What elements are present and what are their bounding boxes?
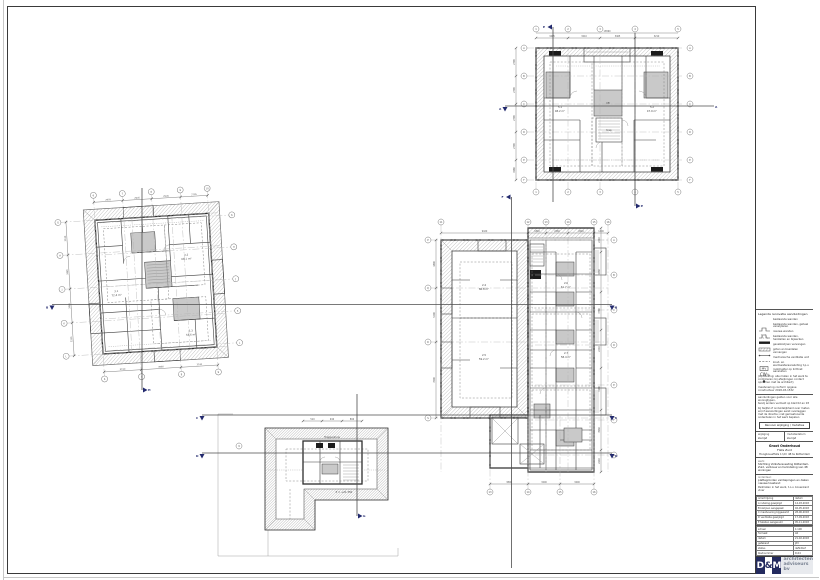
section-arrow xyxy=(636,204,641,209)
section-label: B xyxy=(46,306,49,310)
legend-item: bestaande wanden, geheel verwijderen xyxy=(758,324,811,329)
stamp-two-columns: wijziging zie lijst mutatiedatum zie lij… xyxy=(756,431,813,441)
revision-text: E teksten aangevuld xyxy=(757,520,794,525)
legend-title: Legenda renovatie aanduidingen xyxy=(758,312,811,316)
stamp-note-block: bij twijfel of onduidelijkheid over mate… xyxy=(758,408,811,420)
meta-table: schaal1:100formaatA0datum21-02-2018getek… xyxy=(756,526,813,556)
revision-date: 05-11-2018 xyxy=(793,520,812,525)
wall-new-icon xyxy=(758,330,771,335)
section-label: H xyxy=(148,388,151,392)
section-arrow xyxy=(610,416,615,421)
section-arrow xyxy=(610,306,615,311)
legend-item: bestaande wanden, herstellen en bijwerke… xyxy=(758,336,811,341)
legend-item-label: goten en boeidelen vervangen xyxy=(773,349,811,354)
section-label: A xyxy=(715,105,718,109)
section-label: A xyxy=(499,107,502,111)
meta-row: bladnummerD-04 xyxy=(757,551,813,556)
section-label: D xyxy=(196,454,199,458)
meta-value: D-04 xyxy=(793,551,812,556)
dot-icon xyxy=(758,369,771,374)
section-label: B xyxy=(615,306,618,310)
legend-item-label: rookmelder op lichtnet aansluiten xyxy=(773,369,811,374)
section-label: E xyxy=(543,25,545,29)
section-label: F xyxy=(502,195,504,199)
section-label: C xyxy=(615,416,618,420)
section-lines-overlay: AABBCCDDEEFGH xyxy=(0,0,820,580)
client-section: werk: Stichting Volkshuisvesting Rotterd… xyxy=(756,457,813,473)
section-label: E xyxy=(641,204,643,208)
subject-line-2: nieuwe toestand xyxy=(758,482,811,485)
wall-existing-icon xyxy=(758,317,771,322)
wall-remove-icon xyxy=(758,324,771,329)
section-arrow xyxy=(548,25,553,30)
section-label: C xyxy=(196,416,199,420)
section-arrow xyxy=(610,454,615,459)
legend-item: goten en boeidelen vervangen xyxy=(758,349,811,354)
legend-item-label: koud- en warmwateraansluiting t.p.v. xyxy=(773,362,811,367)
logo-letter-d: D xyxy=(756,557,765,574)
section-label: G xyxy=(363,514,366,518)
peil-note: Peilmaten in het werk, t.o.v. bovenkant … xyxy=(758,487,811,493)
legend-item: bestaande wanden xyxy=(758,317,811,322)
section-arrow xyxy=(503,107,508,112)
section-arrow xyxy=(50,306,55,311)
legend-rows: bestaande wandenbestaande wanden, geheel… xyxy=(758,317,811,374)
section-label: D xyxy=(615,454,618,458)
logo-ampersand: & xyxy=(765,557,773,574)
section-arrow xyxy=(143,388,148,393)
cv-icon: CW∿ xyxy=(758,362,771,367)
meta-label: bladnummer xyxy=(757,551,794,556)
legend-item-label: bestaande wanden, herstellen en bijwerke… xyxy=(773,336,811,341)
legend-section: Legenda renovatie aanduidingen bestaande… xyxy=(756,309,813,394)
logo-row: D & M architecten adviseurs bv xyxy=(756,556,813,574)
legend-note-1: (Opmerking: alle maten in het werk te co… xyxy=(758,376,811,385)
line-dash-icon xyxy=(758,349,771,354)
col2-label: mutatiedatum xyxy=(787,433,811,436)
section-arrow xyxy=(200,454,205,459)
meta-table-section: schaal1:100formaatA0datum21-02-2018getek… xyxy=(756,525,813,556)
line-solid-icon xyxy=(758,343,771,348)
revision-box-label: Renvooi wijziging / mutaties xyxy=(759,422,810,429)
logo-letter-m: M xyxy=(772,557,781,574)
legend-item-label: bestaande wanden xyxy=(773,319,798,322)
legend-item-label: nieuwe wanden xyxy=(773,331,793,334)
drawing-sheet: ABCDEFABCDEF1234512345346532103465321013… xyxy=(0,0,820,580)
project-section: Groot Onderhoud Flats Zuid Hoogbouwflats… xyxy=(756,441,813,457)
revision-table-section: omschrijving datum A indeling gewijzigd1… xyxy=(756,495,813,526)
legend-item: MVmechanische ventilatie unit xyxy=(758,356,811,361)
stamp-note-b: tenzij anders vermeld op blad 02 en 03 xyxy=(758,403,811,406)
legend-item-label: gevelkozijnen vervangen xyxy=(773,344,805,347)
legend-item: CW∿koud- en warmwateraansluiting t.p.v. xyxy=(758,362,811,367)
project-subtitle: Hoogbouwflats 1 t/m 48 te Rotterdam xyxy=(758,452,811,456)
legend-item: rookmelder op lichtnet aansluiten xyxy=(758,369,811,374)
title-block: Legenda renovatie aanduidingen bestaande… xyxy=(755,6,813,574)
logo-name-line2: adviseurs bv xyxy=(783,563,813,573)
col1-value: zie lijst xyxy=(758,437,782,440)
mv-box-icon: MV xyxy=(758,356,771,361)
wall-repair-icon xyxy=(758,337,771,342)
section-arrow xyxy=(200,416,205,421)
client-text: Stichting Volkshuisvesting Rotterdam-Zui… xyxy=(758,463,811,472)
logo-company-name: architecten adviseurs bv xyxy=(781,557,813,574)
section-arrow xyxy=(358,514,363,519)
subject-section: onderdeel: plattegronden verdiepingen en… xyxy=(756,474,813,495)
legend-item-label: mechanische ventilatie unit xyxy=(773,357,809,360)
section-arrow xyxy=(506,195,511,200)
col2-value: zie lijst xyxy=(787,437,811,440)
col1-label: wijziging xyxy=(758,433,782,436)
legend-item-label: bestaande wanden, geheel verwijderen xyxy=(773,324,811,329)
revision-row: E teksten aangevuld05-11-2018 xyxy=(757,520,813,525)
legend-note-2: maatvoering conform opgave constructeur … xyxy=(758,387,811,393)
stamp-notes-section: aanduidingen gelden voor alle woningtype… xyxy=(756,394,813,431)
revision-table: omschrijving datum A indeling gewijzigd1… xyxy=(756,496,813,526)
